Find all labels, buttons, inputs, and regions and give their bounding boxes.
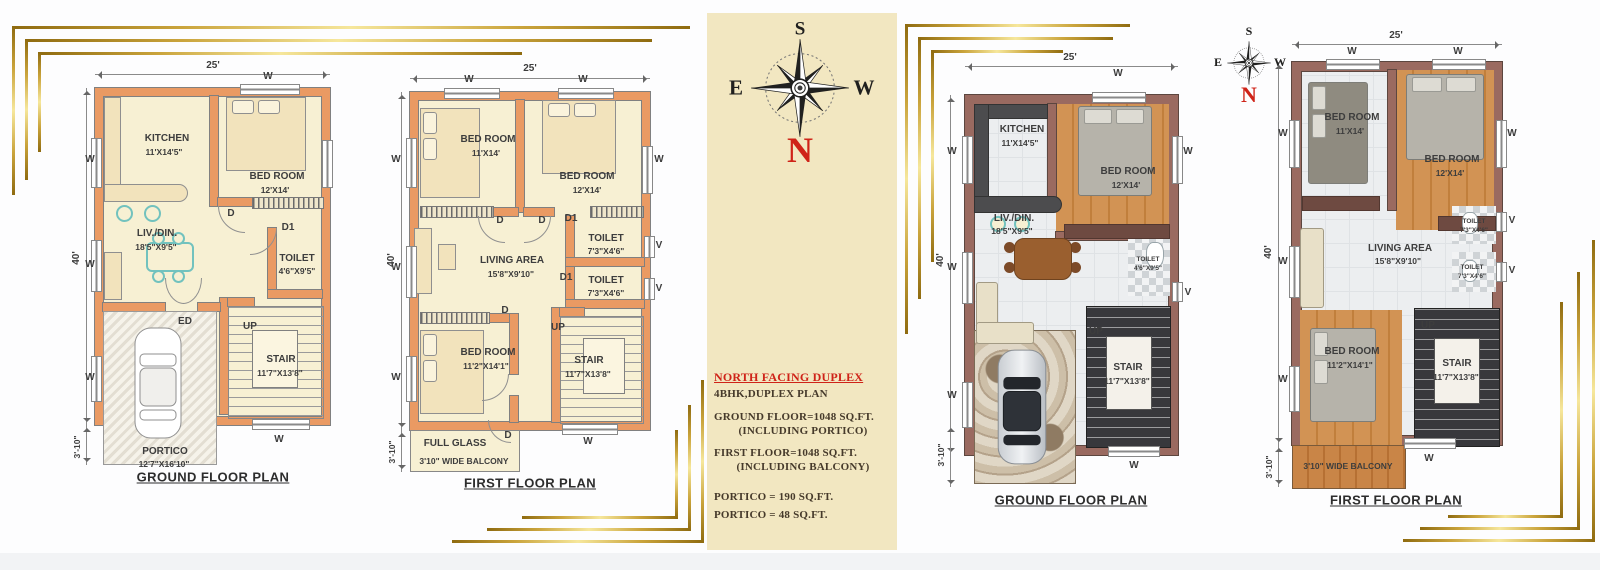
pillow-icon: [1116, 109, 1144, 124]
dim-offset: 3'-10": [73, 432, 82, 461]
railing: [252, 197, 324, 209]
window: [1092, 92, 1146, 103]
window-label: W: [947, 147, 956, 157]
window: [252, 419, 310, 430]
dim-line: [410, 78, 650, 79]
room-size: 11'X14'5": [146, 148, 183, 157]
room-name: BED ROOM: [461, 135, 516, 145]
wardrobe-icon: [1064, 224, 1170, 239]
pillow-icon: [258, 100, 280, 114]
compass-south-label: S: [795, 20, 806, 39]
room-name: TOILET: [588, 234, 623, 244]
plan-type: 4BHK,DUPLEX PLAN: [714, 388, 892, 402]
room-name: TOILET: [1137, 257, 1160, 264]
dim-width: 25': [1060, 53, 1080, 63]
room-name: BED ROOM: [560, 172, 615, 182]
room-name: LIVING AREA: [1368, 244, 1432, 254]
inner-wall: [103, 303, 165, 311]
room-size: 7'3"X4'6": [1458, 274, 1486, 281]
window-label: W: [85, 155, 94, 165]
stool-icon: [116, 205, 133, 222]
pillow-icon: [1312, 86, 1326, 110]
room-size: 11'7"X13'8": [257, 369, 303, 378]
dim-line: [401, 430, 402, 472]
window-label: W: [583, 437, 592, 447]
room-name: STAIR: [574, 356, 603, 366]
room-size: 7'3"X4'6": [588, 289, 625, 298]
room-size: 11'2"X14'1": [463, 362, 509, 371]
pillow-icon: [1314, 360, 1328, 384]
window: [962, 382, 973, 428]
stair-landing: [583, 338, 625, 394]
kitchen-island-icon: [974, 196, 1062, 213]
window-label: W: [1183, 147, 1192, 157]
dim-line: [965, 66, 1178, 67]
window-label: W: [1278, 257, 1287, 267]
dining-table-icon: [1014, 238, 1072, 280]
up-label: UP: [1421, 321, 1435, 331]
balcony-label: 3'10" WIDE BALCONY: [419, 457, 508, 466]
door-label: D1: [565, 214, 578, 224]
room-size: 7'3"X4'6": [588, 247, 625, 256]
inner-wall: [516, 100, 524, 212]
compass-west-label: W: [854, 78, 875, 99]
window-label: W: [263, 72, 272, 82]
ventilator: [1172, 282, 1183, 302]
room-size: 4'6"X9'5": [279, 267, 316, 276]
entry-door-label: ED: [178, 317, 192, 327]
plan-title: FIRST FLOOR PLAN: [464, 477, 596, 490]
dim-line: [1292, 44, 1502, 45]
window: [562, 424, 618, 435]
room-size: 11'X14'5": [1002, 139, 1039, 148]
dim-width: 25': [520, 64, 540, 74]
inner-wall: [220, 298, 228, 414]
inner-wall: [566, 300, 644, 308]
inner-wall: [566, 258, 644, 266]
room-size: 12'X14': [1112, 181, 1141, 190]
pillow-icon: [423, 138, 437, 160]
window-label: W: [1129, 461, 1138, 471]
pillow-icon: [548, 103, 570, 117]
window: [406, 246, 417, 298]
plan-title: GROUND FLOOR PLAN: [137, 471, 290, 484]
window: [1289, 246, 1300, 298]
dim-offset: 3'-10": [388, 437, 397, 466]
ventilator: [1496, 212, 1507, 232]
window: [1326, 59, 1380, 70]
dim-line: [1278, 445, 1279, 487]
window: [406, 356, 417, 402]
vent-label: V: [1509, 216, 1516, 226]
room-name: BED ROOM: [250, 172, 305, 182]
vent-label: V: [656, 241, 663, 251]
room-name: BED ROOM: [1325, 347, 1380, 357]
compass-south-label: S: [1246, 25, 1253, 37]
room-name: BED ROOM: [461, 348, 516, 358]
dim-width: 25': [1386, 31, 1406, 41]
door-label: D1: [560, 273, 573, 283]
inner-wall: [218, 198, 252, 206]
room-size: 15'8"X9'10": [1375, 257, 1421, 266]
chair-icon: [152, 270, 165, 283]
window-label: W: [464, 75, 473, 85]
room-size: 11'X14': [472, 149, 500, 158]
dim-height: 40': [72, 248, 82, 268]
ventilator: [1496, 262, 1507, 282]
room-size: 15'8"X9'10": [488, 270, 534, 279]
room-name: LIVING AREA: [480, 256, 544, 266]
window-label: W: [1424, 454, 1433, 464]
portico-area: PORTICO = 190 SQ.FT.: [714, 491, 892, 505]
sofa-icon: [1300, 228, 1324, 308]
project-details: NORTH FACING DUPLEX 4BHK,DUPLEX PLAN GRO…: [714, 370, 892, 522]
ground-note: (INCLUDING PORTICO): [714, 425, 892, 439]
dim-line: [95, 74, 330, 75]
window-label: W: [1453, 47, 1462, 57]
room-name: LIV./DIN.: [994, 214, 1034, 224]
first-area: FIRST FLOOR=1048 SQ.FT.: [714, 447, 892, 461]
window-label: W: [391, 263, 400, 273]
room-size: 11'7"X13'8": [565, 370, 611, 379]
vent-label: V: [1185, 288, 1192, 298]
inner-wall: [510, 314, 518, 374]
door-label: D1: [282, 223, 295, 233]
dim-offset: 3'-10": [1265, 452, 1274, 481]
window-label: W: [274, 435, 283, 445]
window: [1432, 59, 1486, 70]
project-title: NORTH FACING DUPLEX: [714, 370, 892, 385]
compass-north-label: N: [1241, 84, 1257, 106]
room-name: PORTICO: [142, 447, 188, 457]
window-label: W: [654, 155, 663, 165]
ground-area: GROUND FLOOR=1048 SQ.FT.: [714, 411, 892, 425]
door-label: D: [496, 216, 503, 226]
window-label: W: [391, 155, 400, 165]
window-label: W: [1113, 69, 1122, 79]
window: [240, 84, 300, 95]
pillow-icon: [423, 334, 437, 356]
room-name: TOILET: [279, 254, 314, 264]
compass-north-label: N: [787, 132, 813, 168]
inner-wall: [228, 298, 254, 306]
vent-label: V: [656, 284, 663, 294]
room-size: 11'X14': [1336, 127, 1364, 136]
room-name: LIV./DIN.: [137, 229, 177, 239]
room-name: KITCHEN: [145, 134, 189, 144]
pillow-icon: [423, 360, 437, 382]
room-name: STAIR: [1113, 363, 1142, 373]
room-size: 18'5"X9'5": [991, 227, 1032, 236]
dim-offset: 3'-10": [937, 440, 946, 469]
railing: [420, 312, 490, 324]
pillow-icon: [1084, 109, 1112, 124]
window: [1404, 438, 1456, 449]
compass-east-label: E: [729, 78, 743, 99]
window: [1496, 120, 1507, 168]
balcony-label: 3'10" WIDE BALCONY: [1303, 462, 1392, 471]
window-label: W: [1278, 129, 1287, 139]
up-label: UP: [1089, 327, 1103, 337]
inner-wall: [510, 396, 518, 422]
car-top-view-icon: [132, 324, 184, 442]
pillow-icon: [232, 100, 254, 114]
plan-title: FIRST FLOOR PLAN: [1330, 494, 1462, 507]
window: [322, 140, 333, 188]
car-top-view-icon: [992, 346, 1052, 468]
window: [444, 88, 500, 99]
stool-icon: [144, 205, 161, 222]
window-label: W: [85, 260, 94, 270]
window: [642, 146, 653, 194]
footer-strip: [0, 553, 1600, 570]
room-size: 12'X14': [1436, 169, 1465, 178]
window: [1108, 446, 1160, 457]
room-name: BED ROOM: [1425, 155, 1480, 165]
room-name: TOILET: [588, 276, 623, 286]
room-name: KITCHEN: [1000, 125, 1044, 135]
dim-line: [401, 92, 402, 430]
room-size: 18'5"X9'5": [135, 243, 176, 252]
sofa-icon: [104, 252, 122, 300]
inner-wall: [1048, 104, 1056, 204]
window-label: W: [85, 373, 94, 383]
up-label: UP: [243, 322, 257, 332]
up-label: UP: [551, 323, 565, 333]
window-label: W: [1347, 47, 1356, 57]
room-size: 11'2"X14'1": [1327, 361, 1373, 370]
window-label: W: [1278, 375, 1287, 385]
window-label: W: [947, 263, 956, 273]
window: [1289, 366, 1300, 412]
door-label: D: [504, 431, 511, 441]
window-label: W: [578, 75, 587, 85]
dim-height: 40': [1264, 242, 1274, 262]
sofa-icon: [976, 322, 1034, 344]
compass-west-label: W: [1274, 56, 1286, 68]
door-label: D: [501, 306, 508, 316]
wardrobe-icon: [1302, 196, 1380, 211]
kitchen-peninsula-icon: [104, 184, 188, 202]
side-table-icon: [438, 244, 456, 270]
pillow-icon: [1446, 77, 1476, 92]
vent-label: V: [1509, 266, 1516, 276]
room-name: TOILET: [1463, 219, 1486, 226]
ventilator: [644, 278, 655, 300]
room-size: 12'7"X16'10": [139, 460, 190, 469]
window-label: W: [391, 373, 400, 383]
window-label: W: [1507, 129, 1516, 139]
plan-title: GROUND FLOOR PLAN: [995, 494, 1148, 507]
full-glass-label: FULL GLASS: [424, 439, 487, 449]
kitchen-counter-icon: [974, 104, 989, 204]
dim-line: [950, 425, 951, 487]
window: [1172, 136, 1183, 184]
stair-landing: [1106, 336, 1152, 410]
room-size: 7'3"X4'6": [1460, 228, 1488, 235]
dim-width: 25': [203, 61, 223, 71]
window-label: W: [947, 391, 956, 401]
portico-area2: PORTICO = 48 SQ.FT.: [714, 509, 892, 523]
floorplan-poster: 25' 40' 3'-10": [0, 0, 1600, 570]
window: [406, 138, 417, 188]
inner-wall: [560, 308, 584, 316]
door-label: D: [538, 216, 545, 226]
room-name: BED ROOM: [1325, 113, 1380, 123]
railing: [590, 206, 644, 218]
room-size: 11'7"X13'8": [1104, 377, 1150, 386]
dim-line: [1278, 62, 1279, 445]
room-size: 4'6"X9'5": [1134, 266, 1162, 273]
pillow-icon: [423, 112, 437, 134]
window: [1289, 120, 1300, 168]
pillow-icon: [1412, 77, 1442, 92]
compass-rose-icon: [1226, 40, 1272, 86]
pillow-icon: [574, 103, 596, 117]
inner-wall: [1388, 70, 1396, 210]
room-size: 12'X14': [573, 186, 602, 195]
inner-wall: [210, 96, 218, 206]
dim-height: 40': [936, 250, 946, 270]
dim-line: [86, 425, 87, 465]
ventilator: [644, 236, 655, 258]
compass-rose-icon: [748, 36, 852, 140]
first-note: (INCLUDING BALCONY): [714, 461, 892, 475]
room-size: 11'7"X13'8": [1433, 373, 1479, 382]
inner-wall: [268, 290, 322, 298]
room-size: 12'X14': [261, 186, 290, 195]
compass-east-label: E: [1214, 56, 1222, 68]
room-name: BED ROOM: [1101, 167, 1156, 177]
room-name: STAIR: [1442, 359, 1471, 369]
window: [558, 88, 614, 99]
door-label: D: [227, 209, 234, 219]
room-name: STAIR: [266, 355, 295, 365]
room-name: TOILET: [1461, 265, 1484, 272]
window: [962, 136, 973, 184]
inner-wall: [198, 303, 220, 311]
window: [962, 252, 973, 304]
